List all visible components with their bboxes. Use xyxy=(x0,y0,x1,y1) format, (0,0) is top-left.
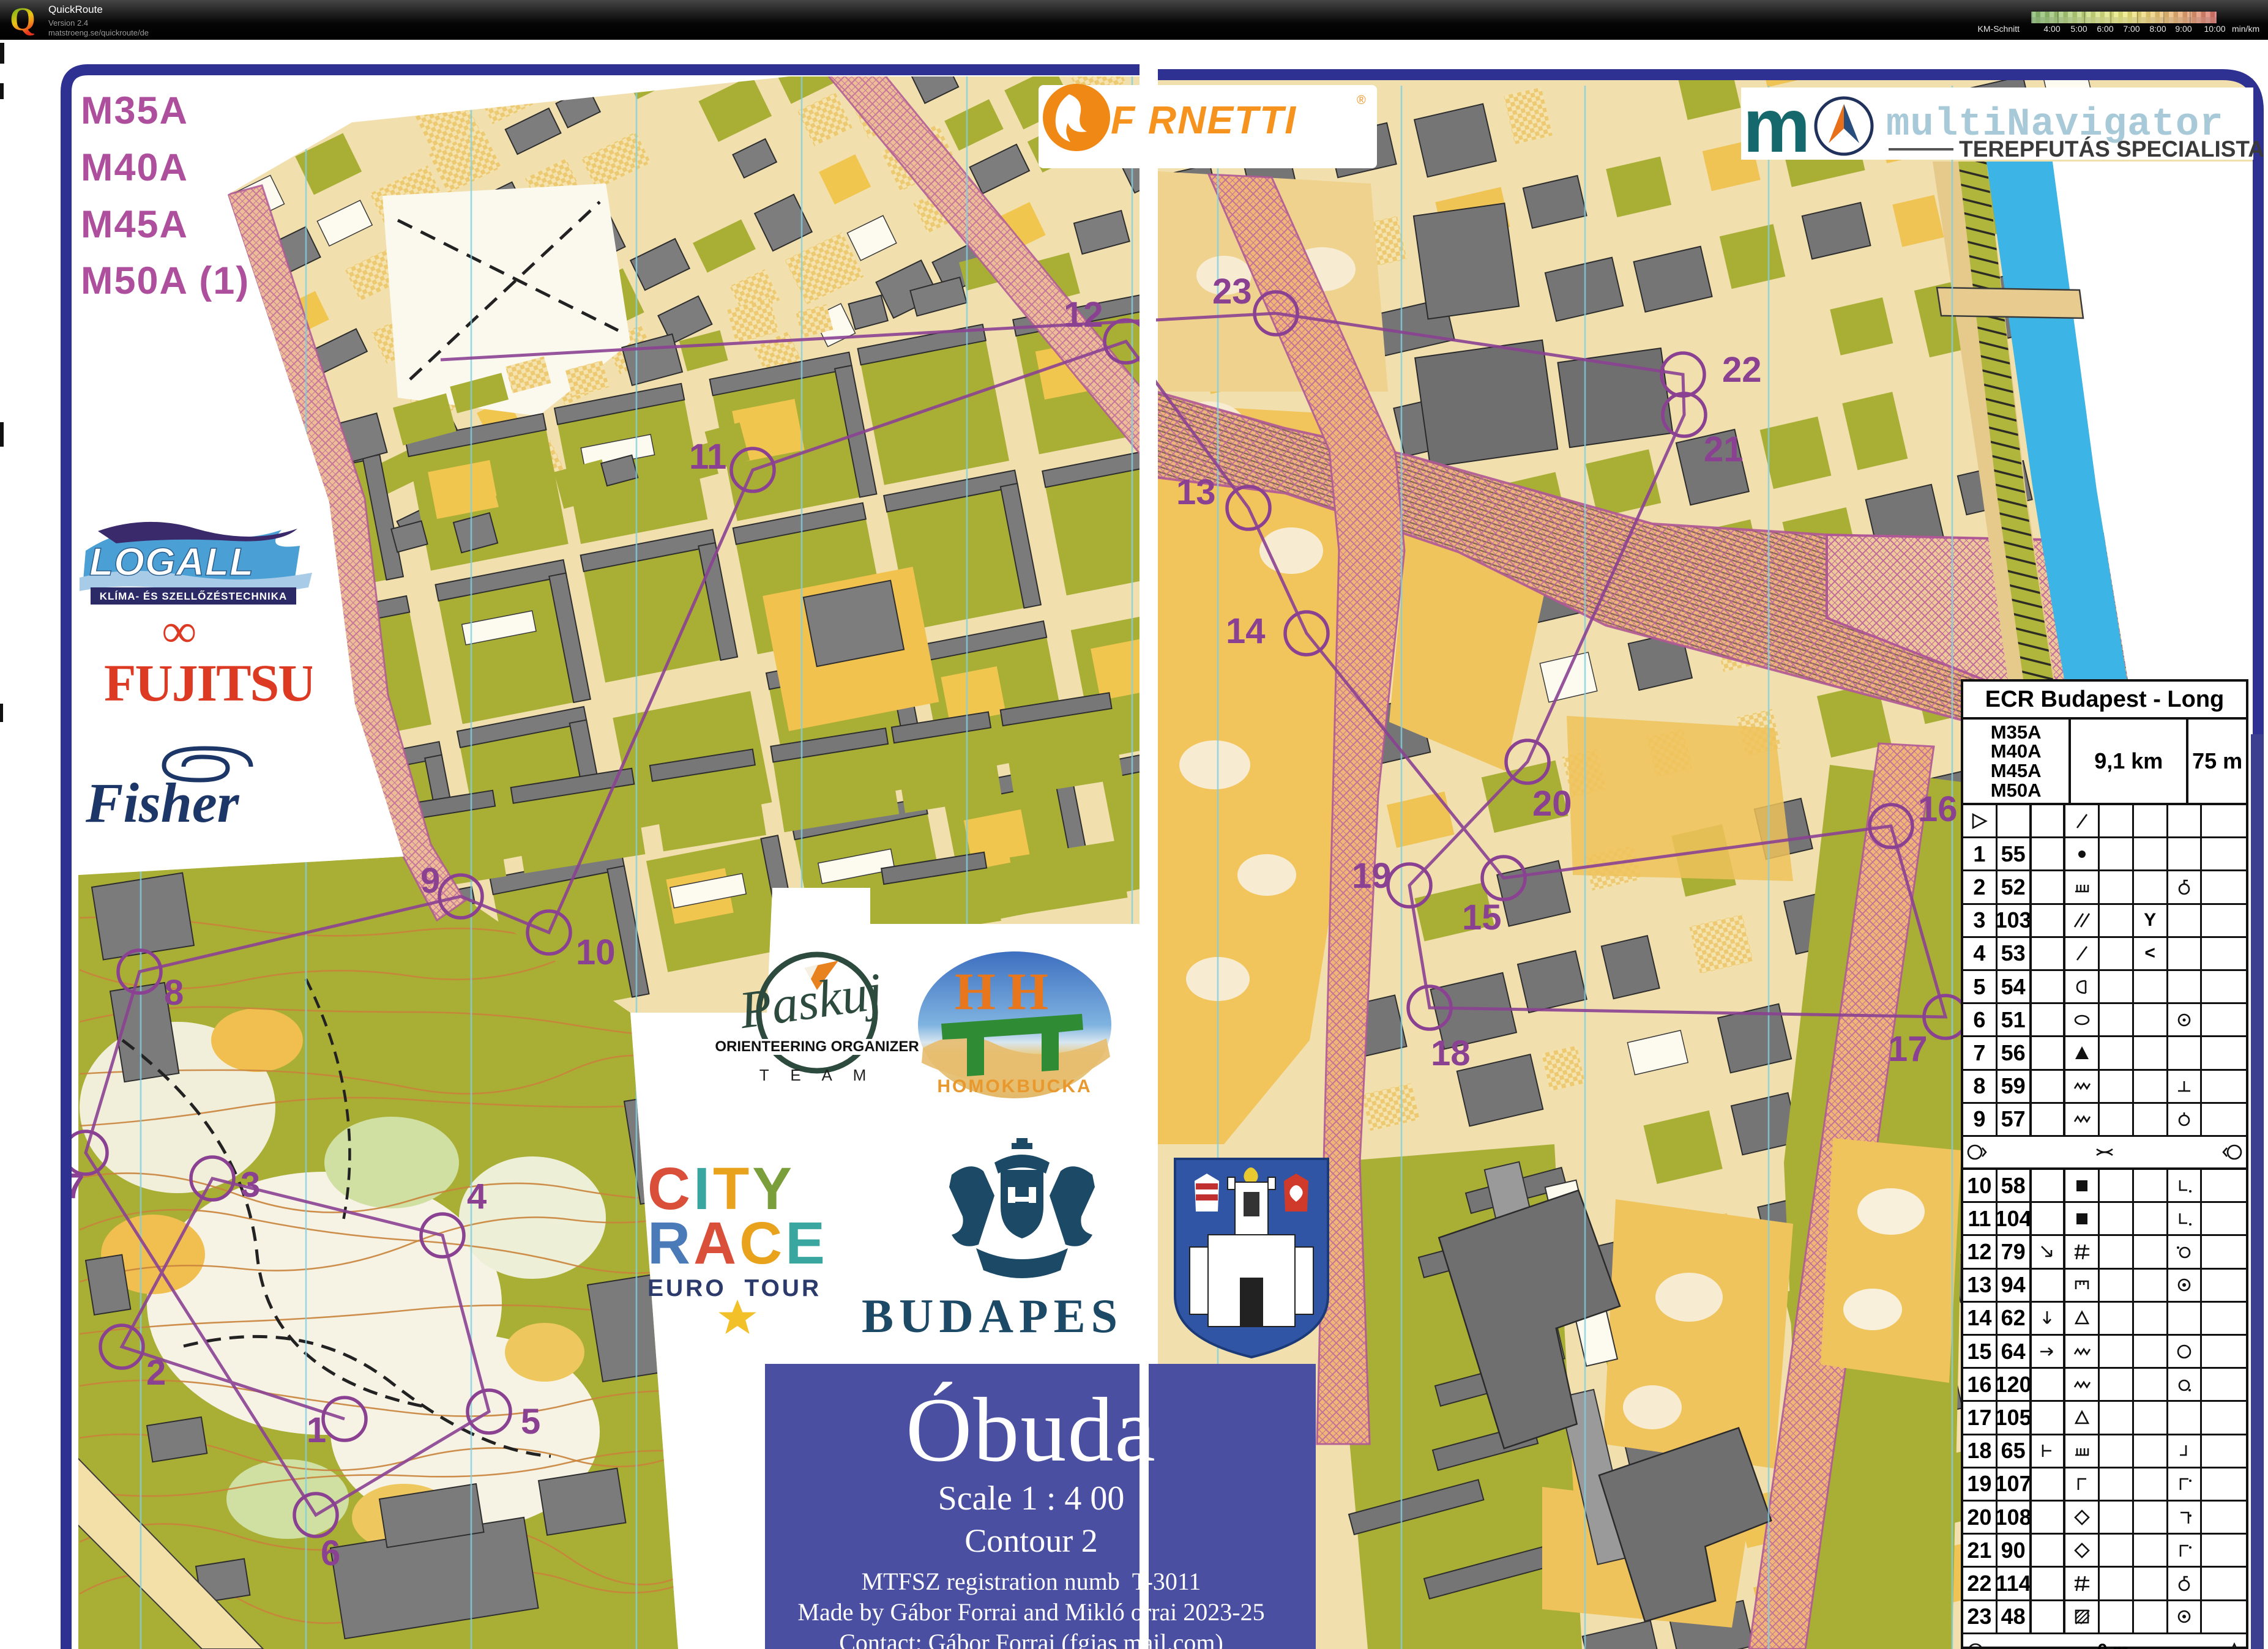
svg-text:20: 20 xyxy=(1532,784,1572,824)
svg-text:HOMOKBUCKA: HOMOKBUCKA xyxy=(937,1076,1092,1096)
svg-text:TEREPFUTÁS SPECIALISTA: TEREPFUTÁS SPECIALISTA xyxy=(1959,136,2264,162)
svg-text:8: 8 xyxy=(164,973,184,1013)
svg-text:22: 22 xyxy=(1722,350,1762,390)
svg-text:H: H xyxy=(1007,962,1048,1021)
svg-text:4: 4 xyxy=(467,1177,487,1216)
svg-text:Paskuj: Paskuj xyxy=(735,961,886,1040)
svg-text:17: 17 xyxy=(1888,1029,1928,1069)
svg-text:m: m xyxy=(1743,86,1810,165)
svg-text:1: 1 xyxy=(307,1410,326,1450)
svg-text:9: 9 xyxy=(420,861,440,901)
svg-text:5: 5 xyxy=(521,1402,540,1442)
svg-text:F RNETTI: F RNETTI xyxy=(1111,98,1297,142)
svg-text:H: H xyxy=(955,962,996,1021)
svg-text:12: 12 xyxy=(1064,295,1103,335)
svg-text:13: 13 xyxy=(1176,472,1216,512)
svg-text:10: 10 xyxy=(576,932,616,972)
svg-text:16: 16 xyxy=(1918,789,1958,829)
svg-text:18: 18 xyxy=(1431,1033,1471,1073)
svg-text:ORIENTEERING ORGANIZER: ORIENTEERING ORGANIZER xyxy=(715,1038,919,1055)
svg-text:KLÍMA- ÉS SZELLŐZÉSTECHNIKA: KLÍMA- ÉS SZELLŐZÉSTECHNIKA xyxy=(100,590,288,602)
svg-text:14: 14 xyxy=(1226,611,1266,651)
svg-text:6: 6 xyxy=(321,1533,340,1573)
svg-text:FUJITSU: FUJITSU xyxy=(104,653,312,712)
svg-text:23: 23 xyxy=(1212,272,1252,311)
svg-text:∞: ∞ xyxy=(162,609,196,657)
svg-text:3: 3 xyxy=(241,1165,260,1205)
svg-text:11: 11 xyxy=(689,437,726,477)
svg-text:®: ® xyxy=(1357,94,1366,107)
svg-text:LOGALL: LOGALL xyxy=(89,540,254,584)
svg-text:Q: Q xyxy=(10,3,35,37)
svg-text:2: 2 xyxy=(146,1353,166,1393)
svg-text:T E A M: T E A M xyxy=(759,1066,875,1084)
svg-text:21: 21 xyxy=(1704,430,1744,469)
svg-text:Fisher: Fisher xyxy=(85,772,240,834)
svg-text:15: 15 xyxy=(1462,898,1502,937)
svg-text:19: 19 xyxy=(1352,856,1392,896)
